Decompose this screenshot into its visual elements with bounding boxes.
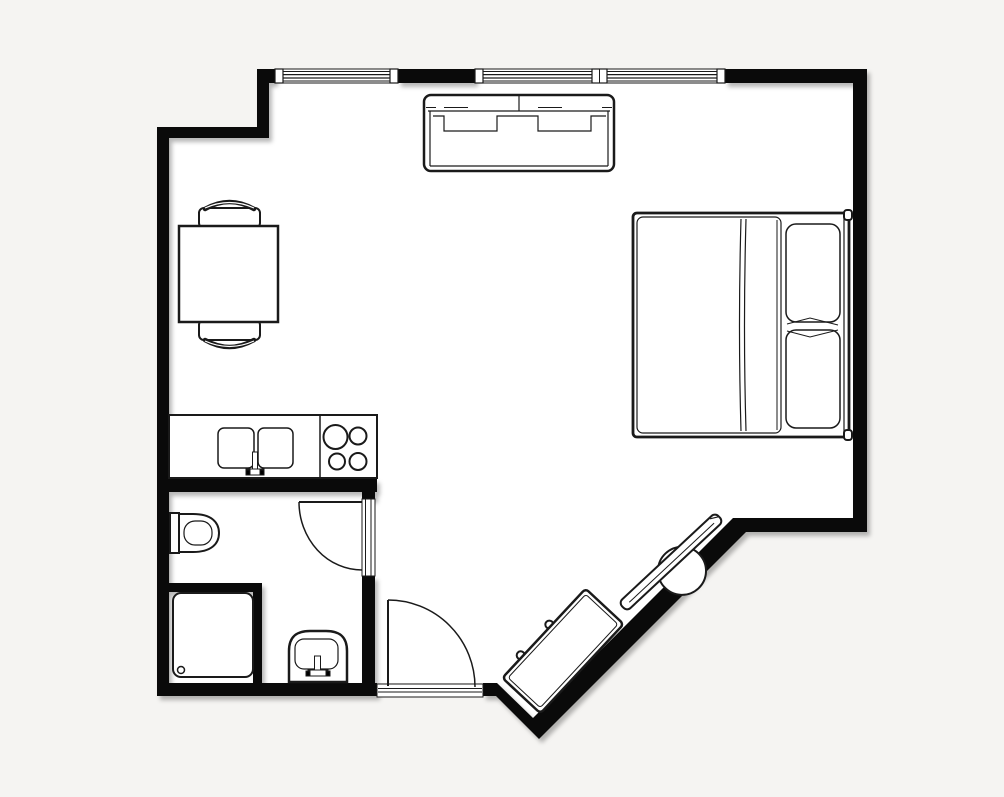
wall-bathroom-top: [157, 479, 377, 492]
window-jamb: [390, 69, 398, 83]
window-jamb: [717, 69, 725, 83]
wall-top-middle-pier: [398, 69, 475, 83]
wall-bottom: [157, 683, 377, 696]
basin-tap-handle: [326, 671, 330, 676]
toilet-bowl: [179, 514, 219, 552]
sink-bowl-right: [258, 428, 293, 468]
faucet-handle: [260, 470, 264, 475]
bed-post: [844, 430, 852, 440]
floor-plan-drawing: [0, 0, 1004, 797]
wall-shower-top: [160, 583, 262, 592]
wall-right: [853, 69, 867, 532]
wall-left: [157, 127, 169, 696]
shower: [173, 593, 253, 677]
washbasin: [289, 631, 347, 682]
wall-shower-side: [253, 583, 262, 683]
sink-bowl-left: [218, 428, 254, 468]
shower-tray: [173, 593, 253, 677]
wall-bottom-right-jog: [735, 518, 867, 532]
window-left: [275, 69, 398, 83]
pillow: [786, 224, 840, 322]
window-right: [475, 69, 725, 83]
wall-top-left-stub: [257, 69, 269, 138]
faucet-stem: [253, 452, 258, 470]
window-jamb: [275, 69, 283, 83]
basin-tap-base: [308, 670, 328, 676]
kitchen-counter: [169, 415, 377, 478]
wall-top-right: [725, 69, 867, 83]
door-opening: [362, 499, 375, 576]
toilet: [170, 513, 219, 553]
sofa: [424, 95, 614, 171]
faucet-handle: [246, 470, 250, 475]
wall-bathroom-right-upper: [362, 492, 375, 499]
door-threshold: [377, 684, 483, 697]
floor-plan-canvas: [0, 0, 1004, 797]
window-jamb: [475, 69, 483, 83]
bed-post: [844, 210, 852, 220]
pillow: [786, 330, 840, 428]
wall-bathroom-right-lower: [362, 576, 375, 683]
basin-tap-handle: [306, 671, 310, 676]
wall-step: [157, 127, 269, 138]
dining-table: [179, 226, 278, 322]
double-bed: [633, 210, 852, 440]
toilet-tank: [170, 513, 179, 553]
